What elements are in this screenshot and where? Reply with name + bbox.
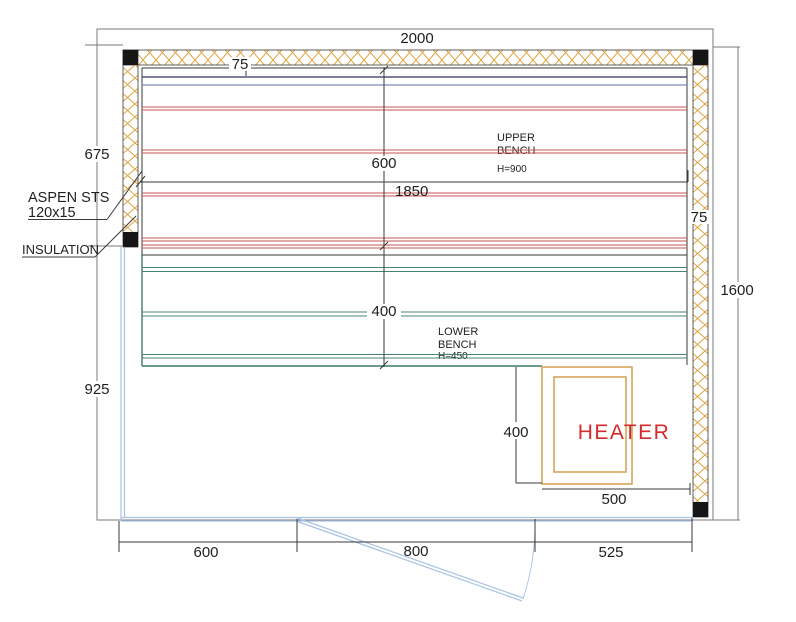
cladding-label-line2: 120x15 [28,205,76,221]
plan-canvas: UPPER BENCH H=900 LOWER BENCH H=450 [0,0,796,622]
dim-wall-thickness-top: 75 [232,56,249,73]
lower-bench-label-1: LOWER [438,326,478,338]
dim-bench-length: 1850 [395,183,428,200]
material-annotations: ASPEN STS 120x15 INSULATION HEATER [22,190,670,444]
left-wall-hatch [123,50,138,247]
corner-post-top-right [693,50,708,65]
text-backers [81,31,759,439]
lower-bench-height-label: H=450 [438,351,468,362]
corner-post-bottom-right [693,502,708,517]
lower-bench-boards [142,268,687,359]
dim-bottom-right: 525 [598,544,623,561]
dim-lower-bench-depth: 400 [371,303,396,320]
insulation-label: INSULATION [22,242,99,257]
dim-left-upper: 675 [84,146,109,163]
outer-boundary-frame [85,29,740,520]
upper-bench-label-2: BENCH [497,145,536,157]
interior-dimension-lines [136,66,688,369]
cladding-label-line1: ASPEN STS [28,190,109,206]
right-wall-hatch [693,50,708,517]
dim-heater-width: 500 [601,491,626,508]
dim-upper-bench-depth: 600 [371,155,396,172]
dim-heater-guard-depth: 400 [503,424,528,441]
insulated-walls [123,50,708,517]
dim-wall-thickness-right: 75 [691,209,708,226]
bench-frame [142,68,687,366]
dim-overall-height: 1600 [720,282,753,299]
upper-bench-boards [142,77,687,248]
bench-labels: UPPER BENCH H=900 LOWER BENCH H=450 [438,132,536,362]
top-wall-hatch [123,50,708,65]
upper-bench-label-1: UPPER [497,132,535,144]
sauna-floor-plan: UPPER BENCH H=900 LOWER BENCH H=450 [0,0,796,622]
dim-door-opening: 800 [403,543,428,560]
door-swing-arc [523,519,535,599]
heater-label: HEATER [578,421,671,444]
dim-bottom-left: 600 [193,544,218,561]
dim-left-lower: 925 [84,381,109,398]
corner-post-top-left [123,50,138,65]
left-wall-end-post [123,232,138,247]
dim-overall-width: 2000 [400,30,433,47]
upper-bench-height-label: H=900 [497,164,527,175]
glass-walls [121,247,693,521]
lower-bench-label-2: BENCH [438,339,477,351]
